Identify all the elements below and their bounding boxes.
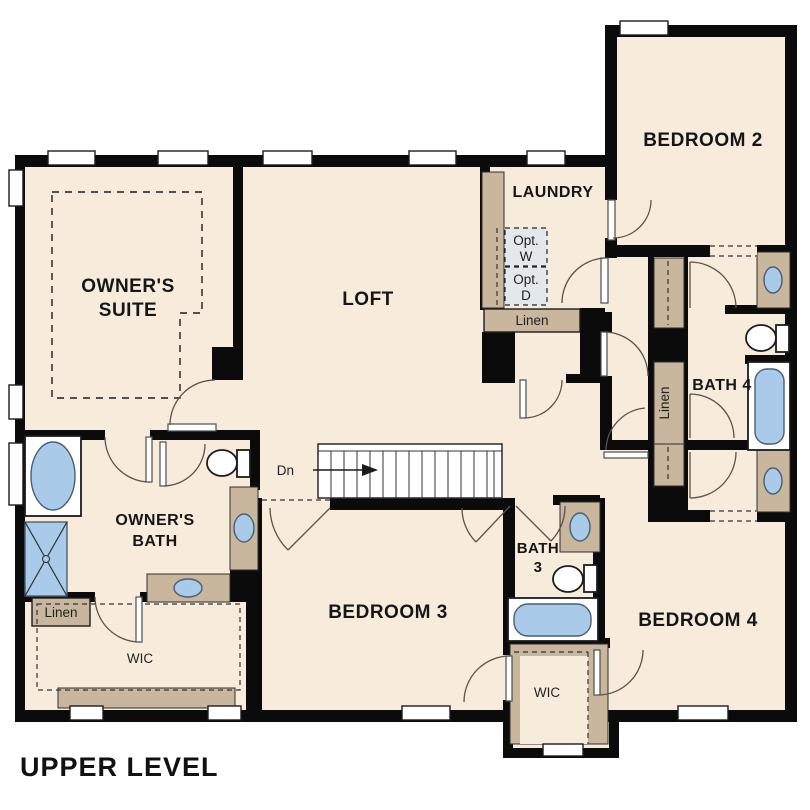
toilet-tank bbox=[237, 450, 250, 477]
loft-label: LOFT bbox=[342, 289, 394, 310]
window bbox=[208, 706, 241, 720]
window bbox=[70, 706, 103, 720]
bath3-toilet bbox=[553, 565, 597, 592]
window bbox=[620, 21, 668, 35]
window bbox=[527, 151, 565, 165]
owners-suite-label-line1: OWNER'S bbox=[81, 276, 175, 297]
sink bbox=[764, 267, 782, 293]
opening-fill bbox=[710, 510, 757, 522]
wall bbox=[613, 245, 710, 257]
bath4-bathtub bbox=[748, 362, 790, 450]
bedroom4-cased-opening bbox=[710, 510, 757, 522]
toilet-bowl bbox=[207, 450, 237, 476]
bedroom2-cased-opening bbox=[710, 245, 757, 257]
wic-center-floor bbox=[520, 656, 588, 744]
door-leaf bbox=[520, 380, 526, 418]
wall bbox=[212, 347, 243, 380]
floor-plan-page: Dn bbox=[0, 0, 810, 810]
linen-laundry-label: Linen bbox=[515, 313, 548, 328]
bath3-bathtub bbox=[508, 598, 598, 641]
window bbox=[9, 443, 23, 505]
toilet-bowl bbox=[746, 325, 776, 351]
owners-bathtub bbox=[25, 436, 81, 516]
tub-basin bbox=[755, 369, 784, 444]
bedroom2-label: BEDROOM 2 bbox=[643, 130, 763, 151]
shower-drain bbox=[43, 556, 50, 563]
wall bbox=[600, 440, 652, 450]
door-leaf bbox=[168, 424, 216, 431]
hall-closet-lower bbox=[654, 444, 684, 486]
window bbox=[409, 151, 456, 165]
owners-bath-label-line1: OWNER'S bbox=[115, 512, 194, 529]
opening-fill bbox=[710, 245, 757, 257]
opt-washer-label-line1: Opt. bbox=[513, 233, 539, 248]
wall bbox=[650, 328, 686, 362]
door-leaf bbox=[601, 332, 607, 376]
bedroom4-label: BEDROOM 4 bbox=[638, 610, 758, 631]
sink bbox=[174, 579, 202, 597]
tub-basin bbox=[31, 442, 75, 510]
wic-owners-shelves bbox=[58, 688, 235, 708]
door-leaf bbox=[136, 597, 142, 642]
wall bbox=[605, 25, 617, 167]
window bbox=[543, 744, 583, 756]
linen-hall-label: Linen bbox=[657, 386, 672, 419]
door-leaf bbox=[601, 258, 608, 303]
stairs-down-label: Dn bbox=[277, 463, 294, 478]
wall bbox=[684, 255, 688, 518]
wall bbox=[609, 712, 619, 758]
linen-owners-label: Linen bbox=[44, 605, 77, 620]
window bbox=[158, 151, 208, 165]
bath4-label: BATH 4 bbox=[692, 377, 752, 394]
wall bbox=[566, 374, 580, 383]
window bbox=[678, 706, 728, 720]
bath4-toilet bbox=[746, 325, 789, 352]
owners-toilet bbox=[207, 450, 250, 477]
window bbox=[9, 170, 23, 206]
sink bbox=[570, 513, 590, 541]
wall bbox=[15, 155, 613, 167]
bedroom3-label: BEDROOM 3 bbox=[328, 602, 448, 623]
owners-suite-label-line2: SUITE bbox=[99, 300, 157, 321]
bath3-label-line1: BATH bbox=[517, 540, 560, 557]
door-leaf bbox=[160, 442, 166, 486]
door-leaf bbox=[594, 650, 600, 695]
door-leaf bbox=[604, 452, 648, 458]
laundry-label: LAUNDRY bbox=[512, 184, 593, 201]
window bbox=[402, 706, 450, 720]
wall bbox=[650, 486, 686, 518]
wall bbox=[330, 498, 515, 510]
opt-washer-label-line2: W bbox=[520, 249, 533, 264]
toilet-tank bbox=[776, 325, 789, 352]
opt-dryer-label-line1: Opt. bbox=[513, 272, 539, 287]
wall bbox=[648, 255, 654, 518]
wall bbox=[233, 165, 243, 347]
window bbox=[9, 385, 23, 419]
hall-closet-upper bbox=[654, 258, 684, 328]
window bbox=[263, 151, 312, 165]
wall bbox=[482, 332, 515, 383]
door-leaf bbox=[506, 656, 512, 701]
bath3-label-line2: 3 bbox=[534, 559, 543, 576]
owners-bath-label-line2: BATH bbox=[132, 533, 177, 550]
owners-shower bbox=[25, 522, 67, 596]
opt-dryer-label-line2: D bbox=[521, 288, 531, 303]
floor-plan-drawing: Dn bbox=[0, 0, 810, 810]
toilet-bowl bbox=[553, 566, 583, 592]
window bbox=[48, 151, 95, 165]
sink bbox=[764, 468, 782, 494]
wic-owners-label: WIC bbox=[127, 651, 153, 666]
toilet-tank bbox=[584, 565, 597, 592]
wall bbox=[605, 167, 617, 200]
door-leaf bbox=[146, 437, 152, 482]
tub-basin bbox=[514, 604, 591, 636]
wall bbox=[250, 440, 260, 490]
laundry-cabinet bbox=[482, 172, 504, 308]
plan-title: UPPER LEVEL bbox=[20, 752, 219, 783]
door-leaf bbox=[608, 200, 615, 240]
sink bbox=[234, 514, 254, 542]
wic-center-label: WIC bbox=[534, 685, 560, 700]
wall bbox=[600, 376, 612, 448]
